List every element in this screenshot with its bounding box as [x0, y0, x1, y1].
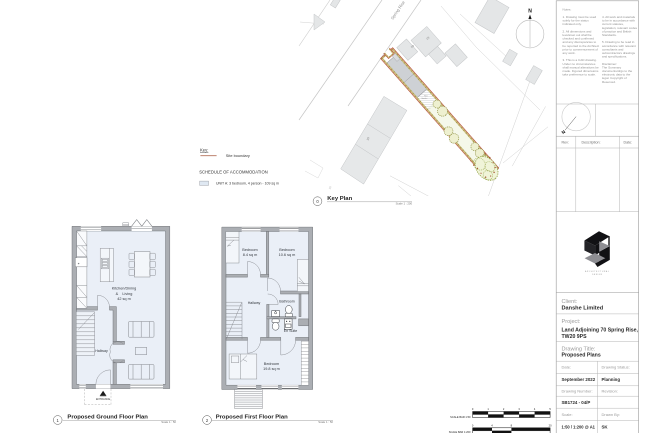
svg-text:ARCHITECTURAL: ARCHITECTURAL — [585, 270, 610, 273]
svg-text:Proposed First Floor Plan: Proposed First Floor Plan — [216, 414, 288, 420]
svg-text:1:50 / 1:200 @ A1: 1:50 / 1:200 @ A1 — [562, 425, 596, 430]
svg-text:Key Plan: Key Plan — [327, 196, 352, 202]
svg-text:Drawing Status:: Drawing Status: — [602, 365, 630, 370]
svg-text:TW20 9PS: TW20 9PS — [562, 334, 588, 340]
svg-text:Bathroom: Bathroom — [279, 300, 295, 304]
svg-text:Bedroom: Bedroom — [279, 248, 294, 252]
svg-text:Client:: Client: — [562, 299, 578, 305]
svg-text:take preference to scale.: take preference to scale. — [563, 73, 597, 77]
svg-text:Hallway: Hallway — [95, 349, 108, 353]
svg-text:UNIT A: 3 bedroom, 4 person -: UNIT A: 3 bedroom, 4 person - 109 sq m — [216, 182, 279, 186]
svg-text:Project:: Project: — [562, 319, 581, 325]
svg-text:September 2022: September 2022 — [562, 377, 596, 382]
svg-text:SK: SK — [602, 425, 609, 430]
svg-text:Scale 1 : 50: Scale 1 : 50 — [161, 420, 176, 424]
svg-text:Rev:: Rev: — [562, 141, 569, 145]
svg-text:En Suite: En Suite — [284, 329, 298, 333]
svg-text:Bedroom: Bedroom — [242, 248, 257, 252]
svg-text:DESIGN: DESIGN — [592, 274, 603, 276]
svg-text:& Living: & Living — [116, 292, 133, 296]
svg-text:Revision:: Revision: — [602, 389, 618, 394]
svg-text:19.8 sq m: 19.8 sq m — [263, 367, 280, 371]
svg-text:Drawing Title:: Drawing Title: — [562, 346, 596, 352]
svg-text:ENTRANCE: ENTRANCE — [96, 397, 111, 401]
svg-text:Bedroom: Bedroom — [264, 362, 279, 366]
svg-text:Scale 1 : 50: Scale 1 : 50 — [318, 420, 333, 424]
svg-text:Hallway: Hallway — [248, 301, 261, 305]
svg-text:any work.: any work. — [563, 51, 576, 55]
svg-text:Danshe Limited: Danshe Limited — [562, 305, 604, 311]
svg-text:SCHEDULE OF ACCOMMODATION: SCHEDULE OF ACCOMMODATION — [199, 169, 268, 174]
svg-text:Garden: Garden — [421, 98, 427, 100]
svg-text:Standards.: Standards. — [602, 33, 617, 37]
svg-text:Proposed Ground Floor Plan: Proposed Ground Floor Plan — [67, 414, 148, 420]
svg-text:8.4 sq m: 8.4 sq m — [243, 253, 258, 257]
svg-text:SCALE BAR 1:50: SCALE BAR 1:50 — [450, 415, 471, 419]
svg-text:10.6 sq m: 10.6 sq m — [279, 253, 296, 257]
svg-text:Key:: Key: — [200, 147, 208, 152]
svg-text:Date:: Date: — [624, 141, 633, 145]
svg-text:SB1724 - 04/P: SB1724 - 04/P — [562, 400, 591, 405]
svg-text:Scale:: Scale: — [562, 412, 573, 417]
svg-text:Drawn By:: Drawn By: — [602, 412, 620, 417]
svg-text:Land Adjoining 70 Spring Rise,: Land Adjoining 70 Spring Rise, — [562, 327, 639, 333]
svg-text:Drawing Number:: Drawing Number: — [562, 389, 593, 394]
svg-text:Site boundary: Site boundary — [226, 153, 250, 158]
svg-text:Scale 1 : 200: Scale 1 : 200 — [396, 202, 413, 206]
svg-text:indicated only.: indicated only. — [563, 22, 582, 26]
svg-text:Proposed Plans: Proposed Plans — [562, 353, 601, 359]
svg-text:and specifications.: and specifications. — [602, 55, 627, 59]
svg-text:Kitchen/Dining: Kitchen/Dining — [112, 287, 136, 291]
svg-text:Notes:: Notes: — [563, 8, 572, 12]
svg-text:Date:: Date: — [562, 365, 572, 370]
svg-text:Reserved.: Reserved. — [602, 80, 616, 84]
svg-text:42 sq m: 42 sq m — [117, 297, 131, 301]
svg-text:N: N — [528, 9, 532, 15]
svg-text:Planning: Planning — [602, 377, 621, 382]
svg-text:Description:: Description: — [582, 141, 601, 145]
